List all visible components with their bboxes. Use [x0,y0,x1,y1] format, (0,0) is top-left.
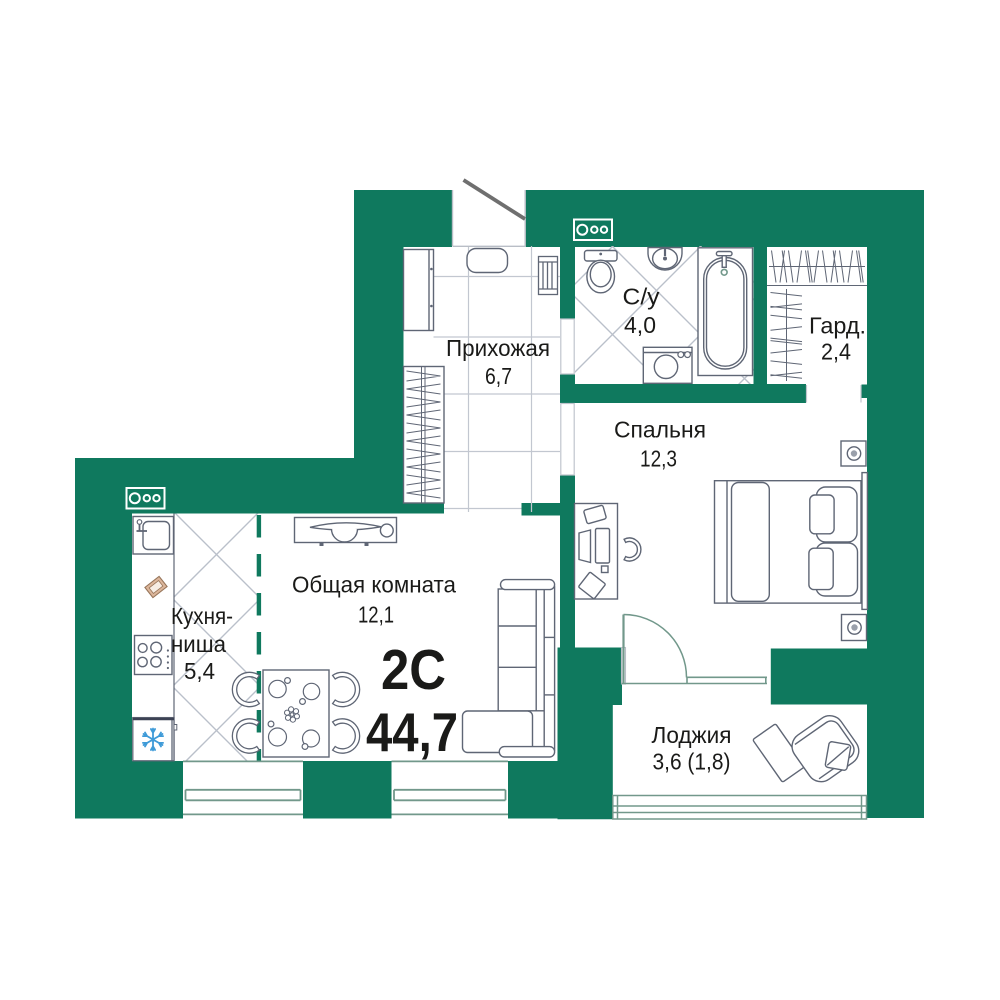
svg-text:5,4: 5,4 [184,658,215,684]
svg-text:Гард.: Гард. [809,313,866,339]
svg-text:Кухня-: Кухня- [171,603,233,629]
svg-text:12,3: 12,3 [640,446,677,472]
svg-text:44,7: 44,7 [366,701,458,763]
svg-text:Прихожая: Прихожая [446,335,550,361]
svg-text:4,0: 4,0 [624,312,656,338]
svg-text:Лоджия: Лоджия [652,722,732,748]
svg-text:2С: 2С [381,638,446,702]
svg-text:2,4: 2,4 [821,339,851,365]
svg-text:С/у: С/у [623,284,661,310]
svg-text:3,6 (1,8): 3,6 (1,8) [653,749,731,775]
svg-text:6,7: 6,7 [485,363,512,389]
svg-text:ниша: ниша [171,631,226,657]
svg-text:12,1: 12,1 [358,602,394,628]
svg-text:Общая комната: Общая комната [292,572,456,598]
svg-text:Спальня: Спальня [614,417,706,443]
